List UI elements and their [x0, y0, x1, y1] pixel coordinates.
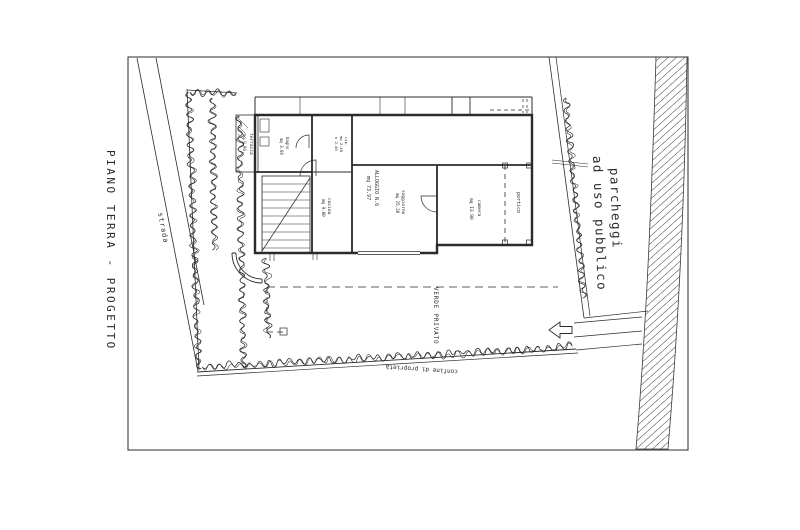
label-rip-height: h 2.40: [334, 137, 339, 151]
fixture: [260, 137, 269, 146]
hedge-line: [209, 99, 218, 250]
label-parcheggi-uso: ad uso pubblico: [590, 156, 610, 292]
label-camera: camera: [476, 200, 481, 217]
door-arcs: [296, 135, 437, 212]
label-alloggio: ALLOGGIO N.6: [373, 170, 379, 206]
label-bagno: bagno: [285, 137, 290, 150]
label-verde-privato: VERDE PRIVATO: [432, 287, 439, 344]
label-bagno-area: mq 3.80: [279, 138, 284, 155]
building-outline: [236, 97, 532, 261]
scanned-floor-plan-sheet: PIANO TERRA - PROGETTO strada terrazza m…: [0, 0, 800, 530]
label-terrazza-area: mq 0.90: [242, 134, 247, 151]
road-left: [137, 58, 204, 371]
hedge-line: [264, 259, 272, 338]
staircase: [262, 176, 310, 253]
label-cucina-area: mq 9.80: [321, 199, 326, 217]
road-hatch-band: [636, 57, 687, 449]
hedge-line: [186, 92, 202, 369]
label-parcheggi: parcheggi: [607, 168, 625, 250]
hedge-line: [236, 116, 247, 368]
fixture: [260, 119, 269, 132]
label-soggiorno-area: mq 25.20: [395, 193, 400, 214]
hedge-vegetation: [185, 89, 587, 370]
curved-wall: [232, 253, 262, 283]
label-camera-area: mq 13.90: [468, 198, 474, 220]
label-confine-di-proprieta: confine di proprietà: [385, 363, 458, 375]
property-boundary: [187, 89, 578, 376]
label-alloggio-area: mq 73.97: [365, 176, 371, 200]
sheet-title: PIANO TERRA - PROGETTO: [104, 150, 117, 351]
private-green-dashed-zone: [267, 287, 558, 335]
label-portico: portico: [515, 192, 521, 213]
floor-plan-drawing: PIANO TERRA - PROGETTO strada terrazza m…: [0, 0, 800, 530]
label-terrazza: terrazza: [248, 133, 254, 155]
entrance-arrow-icon: [549, 322, 572, 338]
